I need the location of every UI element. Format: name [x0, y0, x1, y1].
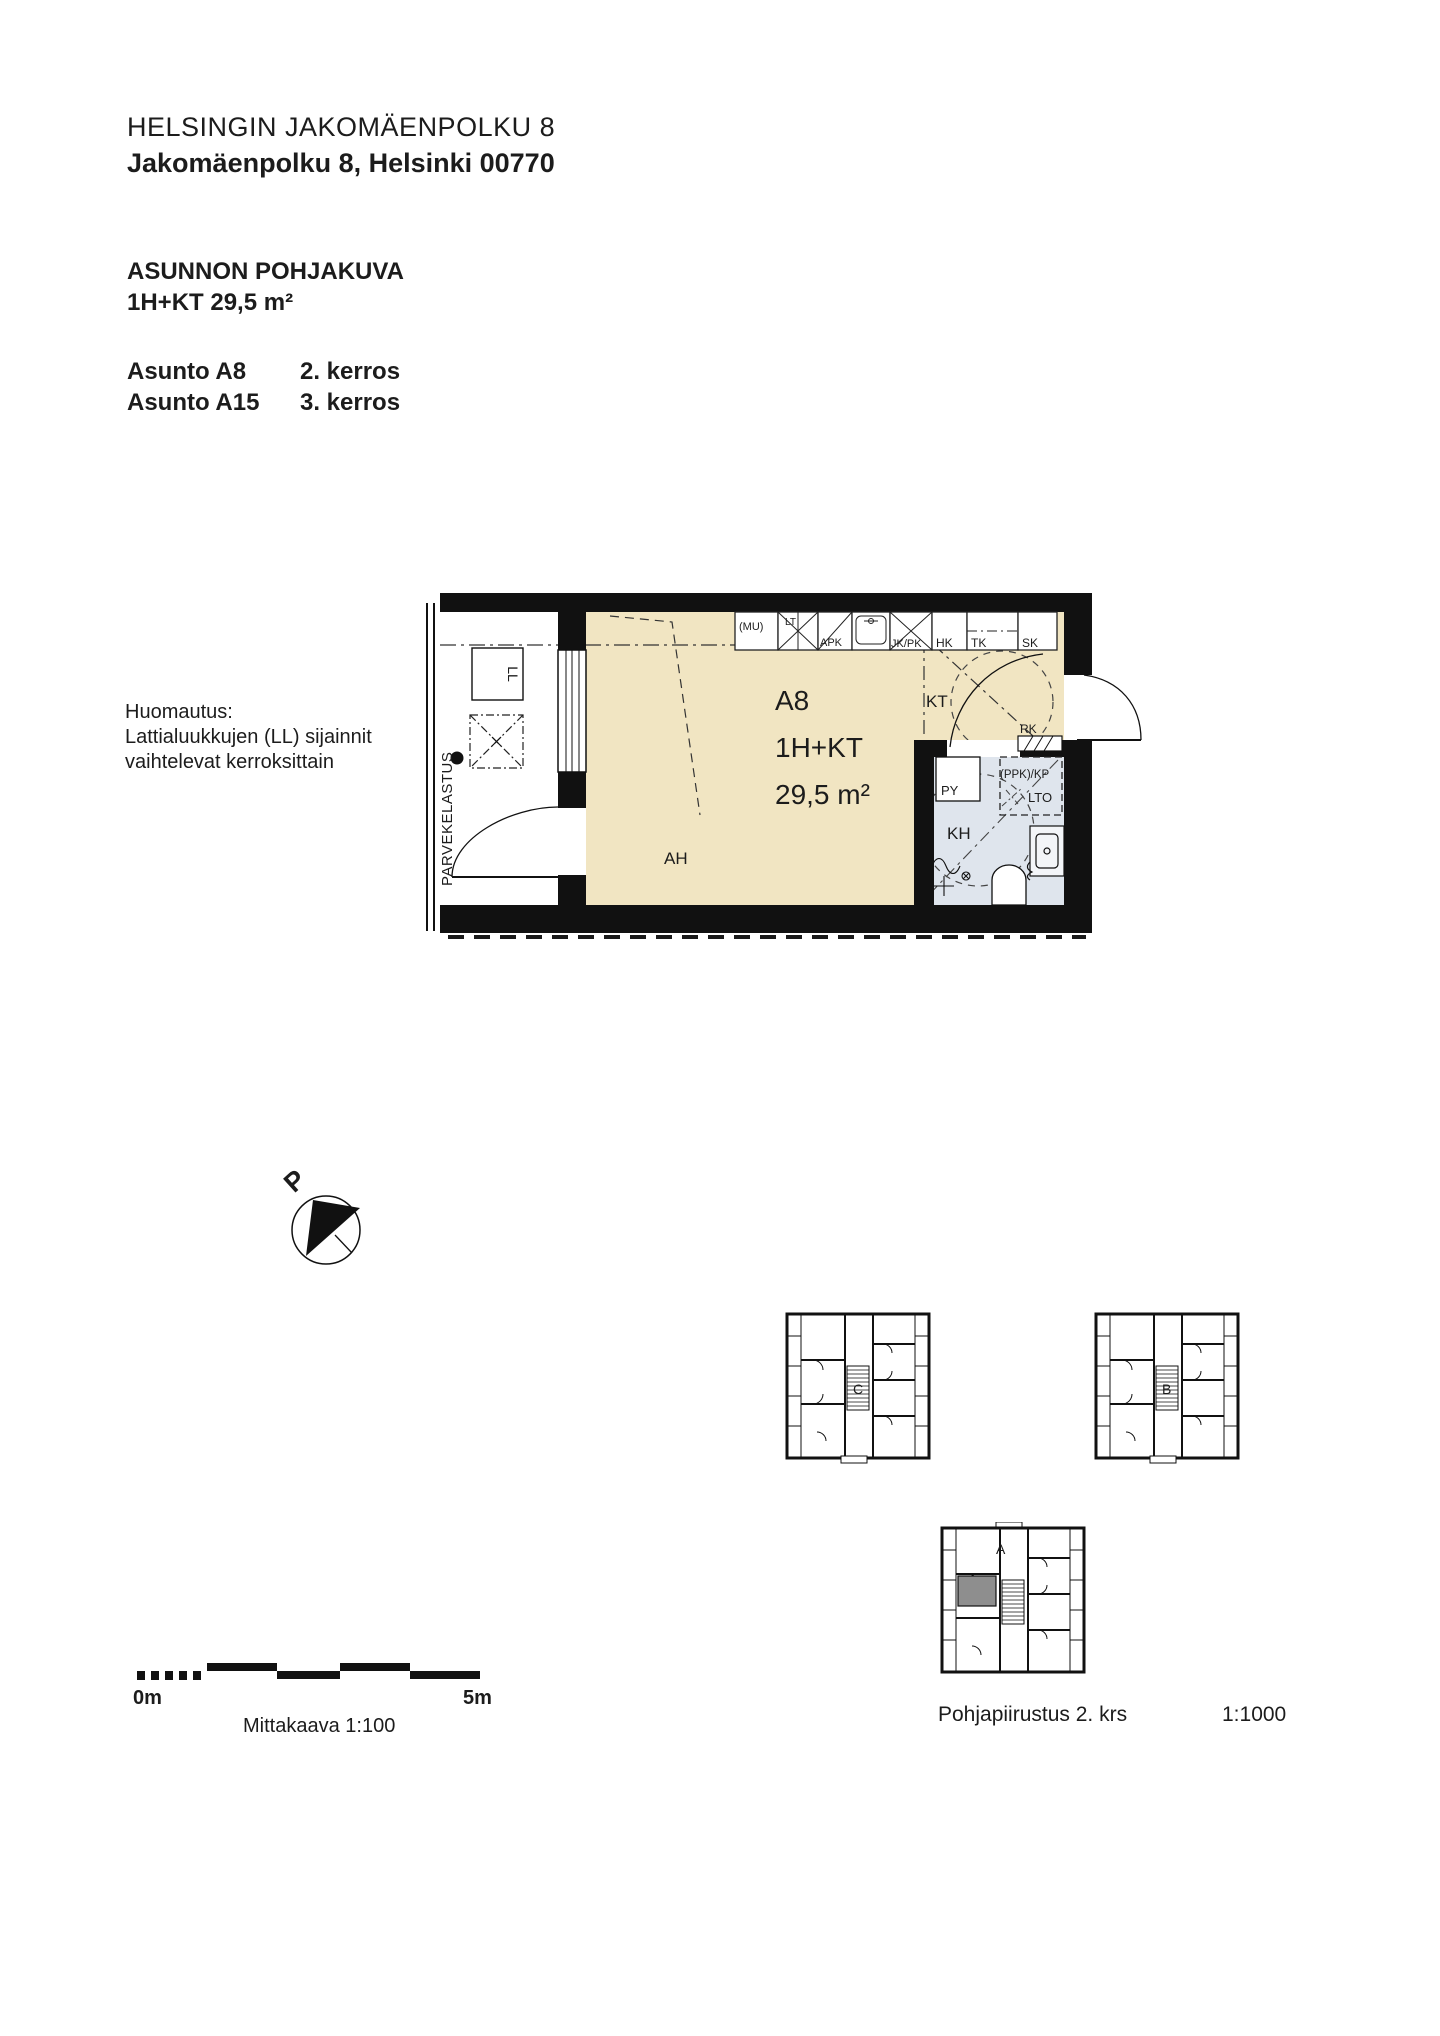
scale-segments — [207, 1663, 480, 1679]
label-lto: LTO — [1028, 790, 1052, 805]
note-block: Huomautus: Lattialuukkujen (LL) sijainni… — [125, 700, 372, 775]
scale-bar: 0m 5m Mittakaava 1:100 — [125, 1652, 505, 1737]
building-label: A — [996, 1541, 1006, 1557]
highlighted-unit — [958, 1576, 996, 1606]
keyplan-scale: 1:1000 — [1222, 1703, 1286, 1727]
label-ppk: (PPK)/KP — [1000, 769, 1050, 781]
unit-name: Asunto A15 — [127, 389, 300, 417]
bathroom-doorway — [947, 740, 1020, 757]
floor-plan: A8 1H+KT 29,5 m² KT AH KH (MU) LT APK JK… — [410, 580, 1180, 950]
unit-floor: 2. kerros — [300, 358, 400, 385]
balcony-door — [452, 807, 558, 877]
note-line: vaihtelevat kerroksittain — [125, 750, 372, 775]
north-arrow: P — [278, 1158, 373, 1273]
building-label: B — [1162, 1381, 1171, 1397]
label-hk: HK — [936, 636, 953, 650]
note-line: Huomautus: — [125, 700, 372, 725]
unit-floor: 3. kerros — [300, 389, 400, 416]
drawing-type-label: ASUNNON POHJAKUVA — [127, 258, 404, 286]
unit-area-label: 29,5 m² — [775, 779, 870, 810]
unit-row: Asunto A153. kerros — [127, 389, 400, 417]
page-address: Jakomäenpolku 8, Helsinki 00770 — [127, 148, 555, 179]
toilet — [992, 865, 1026, 905]
label-parvekelastus: PARVEKELASTUS — [439, 752, 456, 886]
room-label-ah: AH — [664, 849, 688, 868]
hatch-center-x — [492, 737, 501, 746]
scale-dots — [137, 1671, 201, 1680]
label-rk: RK — [1020, 722, 1037, 736]
north-label: P — [278, 1164, 311, 1198]
label-apk: APK — [820, 637, 843, 649]
scale-caption: Mittakaava 1:100 — [243, 1715, 395, 1737]
label-sk: SK — [1022, 636, 1038, 650]
building-label: C — [853, 1381, 863, 1397]
balcony-railing — [427, 603, 434, 931]
key-plan-c: C — [783, 1308, 933, 1464]
room-label-kt: KT — [926, 692, 948, 711]
label-jkpk: JK/PK — [891, 638, 922, 650]
window — [558, 650, 586, 772]
label-py: PY — [941, 783, 959, 798]
compass-needle — [306, 1200, 360, 1256]
label-tk: TK — [971, 636, 986, 650]
note-line: Lattialuukkujen (LL) sijainnit — [125, 725, 372, 750]
scale-end-label: 5m — [463, 1687, 492, 1709]
apartment-type-label: 1H+KT 29,5 m² — [127, 289, 293, 317]
rk-cabinet — [1018, 736, 1062, 751]
unit-name: Asunto A8 — [127, 358, 300, 386]
label-mu: (MU) — [739, 621, 763, 633]
unit-id-label: A8 — [775, 685, 809, 716]
washbasin — [1027, 826, 1064, 880]
label-lt: LT — [785, 617, 796, 628]
compass-radius — [335, 1235, 352, 1253]
entrance-opening — [1064, 675, 1092, 740]
room-label-kh: KH — [947, 824, 971, 843]
scale-start-label: 0m — [133, 1687, 162, 1709]
label-ll: LL — [505, 666, 521, 682]
page-title: HELSINGIN JAKOMÄENPOLKU 8 — [127, 112, 555, 143]
key-plan-a: A — [938, 1522, 1088, 1678]
unit-row: Asunto A82. kerros — [127, 358, 400, 386]
unit-type-label: 1H+KT — [775, 732, 863, 763]
key-plan-b: B — [1092, 1308, 1242, 1464]
keyplan-caption: Pohjapiirustus 2. krs — [938, 1703, 1127, 1727]
